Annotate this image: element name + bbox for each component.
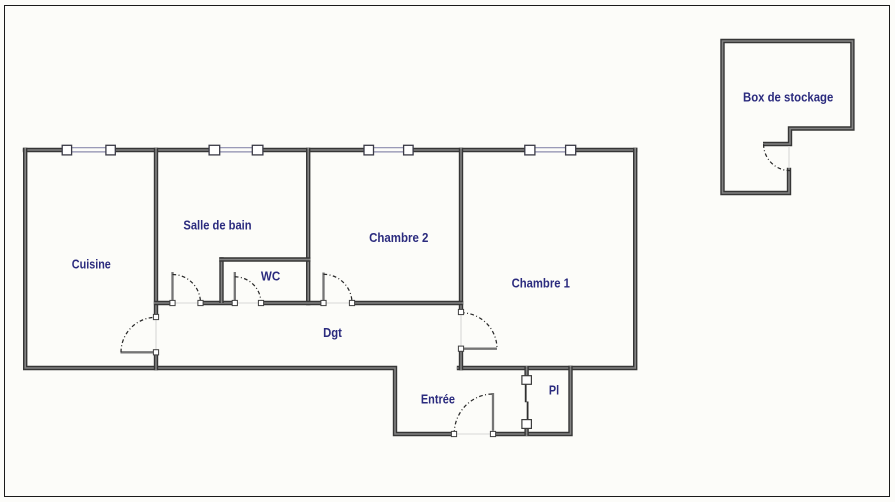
svg-text:Box de stockage: Box de stockage (743, 91, 833, 105)
svg-text:Chambre 2: Chambre 2 (369, 231, 428, 245)
svg-text:Salle de bain: Salle de bain (183, 219, 251, 233)
svg-text:WC: WC (261, 269, 280, 283)
svg-text:Cuisine: Cuisine (72, 257, 111, 271)
svg-text:Entrée: Entrée (421, 393, 455, 407)
svg-text:Pl: Pl (549, 384, 559, 398)
svg-text:Dgt: Dgt (323, 326, 343, 340)
svg-text:Chambre 1: Chambre 1 (512, 277, 570, 291)
